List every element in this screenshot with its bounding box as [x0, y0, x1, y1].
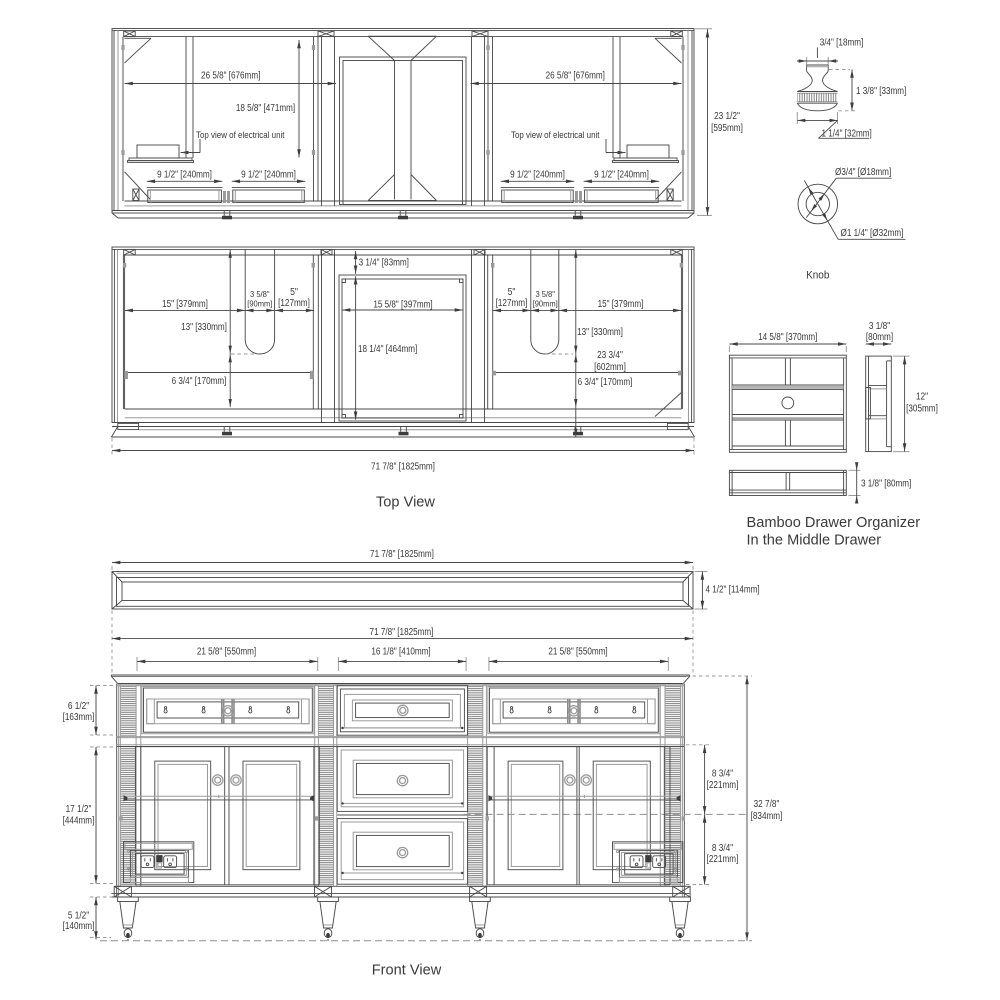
svg-text:12": 12"	[916, 392, 929, 403]
svg-text:Ø3/4" [Ø18mm]: Ø3/4" [Ø18mm]	[835, 167, 891, 178]
svg-text:26 5/8" [676mm]: 26 5/8" [676mm]	[546, 70, 606, 81]
svg-text:13" [330mm]: 13" [330mm]	[181, 322, 227, 333]
svg-text:Top view of electrical unit: Top view of electrical unit	[196, 130, 285, 140]
svg-text:21 5/8" [550mm]: 21 5/8" [550mm]	[548, 647, 608, 658]
svg-text:[221mm]: [221mm]	[707, 854, 739, 865]
svg-text:6 1/2": 6 1/2"	[68, 701, 90, 712]
svg-text:6 3/4" [170mm]: 6 3/4" [170mm]	[172, 376, 227, 387]
svg-text:In the Middle Drawer: In the Middle Drawer	[747, 533, 882, 549]
svg-text:[90mm]: [90mm]	[533, 299, 558, 309]
svg-text:32 7/8": 32 7/8"	[754, 799, 780, 810]
svg-text:Top view of electrical unit: Top view of electrical unit	[511, 130, 600, 140]
svg-text:15" [379mm]: 15" [379mm]	[598, 299, 644, 310]
svg-text:1 3/8" [33mm]: 1 3/8" [33mm]	[856, 86, 907, 97]
svg-text:[140mm]: [140mm]	[63, 921, 95, 932]
svg-text:9 1/2" [240mm]: 9 1/2" [240mm]	[157, 170, 212, 181]
svg-text:Knob: Knob	[806, 270, 829, 282]
svg-text:[80mm]: [80mm]	[866, 332, 893, 343]
svg-text:Bamboo Drawer Organizer: Bamboo Drawer Organizer	[747, 515, 921, 531]
svg-text:8 3/4": 8 3/4"	[712, 843, 734, 854]
svg-text:3 5/8": 3 5/8"	[535, 289, 555, 299]
svg-text:3 5/8": 3 5/8"	[250, 289, 270, 299]
svg-text:5 1/2": 5 1/2"	[68, 911, 90, 922]
svg-text:71 7/8" [1825mm]: 71 7/8" [1825mm]	[371, 462, 435, 473]
svg-text:23 1/2": 23 1/2"	[714, 111, 740, 122]
svg-text:23 3/4": 23 3/4"	[597, 350, 623, 361]
svg-text:[444mm]: [444mm]	[63, 816, 95, 827]
svg-text:18 1/4" [464mm]: 18 1/4" [464mm]	[358, 344, 418, 355]
svg-text:1 1/4" [32mm]: 1 1/4" [32mm]	[822, 129, 873, 140]
svg-text:15" [379mm]: 15" [379mm]	[162, 299, 208, 310]
svg-text:[595mm]: [595mm]	[711, 123, 743, 134]
svg-text:9 1/2" [240mm]: 9 1/2" [240mm]	[241, 170, 296, 181]
svg-text:8 3/4": 8 3/4"	[712, 769, 734, 780]
svg-text:[221mm]: [221mm]	[707, 780, 739, 791]
svg-text:[305mm]: [305mm]	[906, 404, 938, 415]
svg-text:9 1/2" [240mm]: 9 1/2" [240mm]	[510, 170, 565, 181]
svg-text:71 7/8" [1825mm]: 71 7/8" [1825mm]	[370, 627, 434, 638]
svg-text:Ø1 1/4" [Ø32mm]: Ø1 1/4" [Ø32mm]	[841, 228, 904, 239]
svg-text:[602mm]: [602mm]	[594, 362, 626, 373]
svg-text:9 1/2" [240mm]: 9 1/2" [240mm]	[594, 170, 649, 181]
svg-text:71 7/8" [1825mm]: 71 7/8" [1825mm]	[370, 549, 434, 560]
svg-text:3 1/8" [80mm]: 3 1/8" [80mm]	[861, 478, 912, 489]
svg-text:13" [330mm]: 13" [330mm]	[577, 327, 623, 338]
svg-text:15 5/8" [397mm]: 15 5/8" [397mm]	[373, 300, 433, 311]
svg-text:5": 5"	[290, 287, 298, 298]
svg-text:[127mm]: [127mm]	[496, 298, 528, 309]
svg-text:21 5/8" [550mm]: 21 5/8" [550mm]	[197, 647, 257, 658]
svg-text:6 3/4" [170mm]: 6 3/4" [170mm]	[578, 377, 633, 388]
svg-text:Top View: Top View	[376, 494, 435, 510]
svg-text:5": 5"	[508, 287, 516, 298]
svg-text:3/4" [18mm]: 3/4" [18mm]	[820, 38, 864, 49]
svg-text:Front View: Front View	[372, 963, 442, 979]
svg-text:4 1/2" [114mm]: 4 1/2" [114mm]	[706, 585, 760, 596]
svg-text:18 5/8" [471mm]: 18 5/8" [471mm]	[236, 103, 296, 114]
svg-text:17 1/2": 17 1/2"	[66, 804, 92, 815]
svg-text:[90mm]: [90mm]	[247, 299, 272, 309]
svg-text:14 5/8" [370mm]: 14 5/8" [370mm]	[758, 332, 818, 343]
svg-text:3 1/8": 3 1/8"	[869, 321, 891, 332]
svg-text:[163mm]: [163mm]	[63, 712, 95, 723]
svg-text:[127mm]: [127mm]	[278, 298, 310, 309]
svg-text:16 1/8" [410mm]: 16 1/8" [410mm]	[371, 647, 431, 658]
svg-text:[834mm]: [834mm]	[751, 811, 783, 822]
svg-text:26 5/8" [676mm]: 26 5/8" [676mm]	[201, 70, 261, 81]
svg-text:3 1/4" [83mm]: 3 1/4" [83mm]	[359, 258, 410, 269]
